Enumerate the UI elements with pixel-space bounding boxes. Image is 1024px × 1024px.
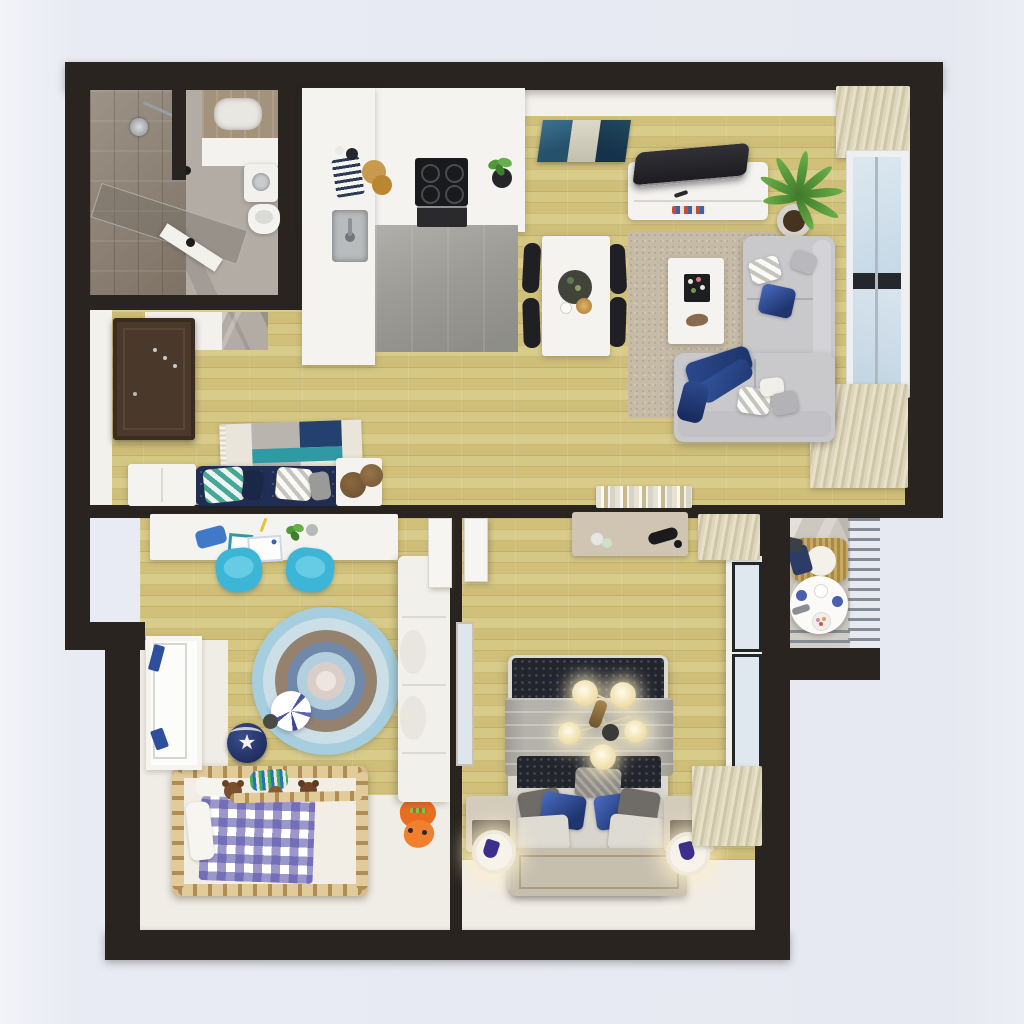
floorplan-render [0,0,1024,1024]
leaning-frame [456,622,474,766]
bathroom-inner-wall [172,90,186,180]
kitchen-plant [488,160,516,188]
balcony-table [790,576,848,634]
wall-left-lower [105,640,140,960]
orange-toy [396,796,440,850]
dining-chair [608,297,627,348]
desk-plant [284,524,306,546]
bed-foot-mat [511,848,687,896]
kitchen-sink [332,210,368,262]
blue-saucer-2 [832,596,843,607]
desk-gray-dot [306,524,318,536]
kitchen-concrete-floor [375,225,518,352]
sweets-plate [812,612,831,631]
kids-door-leaf [428,518,452,588]
wall-right-upper [905,62,943,518]
bedroom-desk [572,512,688,556]
gingham-blanket [199,796,316,884]
chandelier-hub [602,724,619,741]
bedroom-window-frame [726,556,762,774]
white-bowl [335,146,344,155]
bench-pillow-white [275,466,314,501]
bedroom-door-leaf [464,518,488,582]
balcony [788,518,880,650]
teacup [814,584,828,598]
crib [172,766,368,896]
wall-top [65,62,943,90]
bedroom-curtain-bottom [692,766,762,846]
star-ball [227,723,267,763]
kids-window [146,636,202,770]
living-window [846,150,910,398]
bathroom [90,90,278,295]
wall-bathroom-bottom [65,295,302,310]
entry-marble-mat [222,312,268,350]
kids-wardrobe [398,556,450,802]
gray-napkin [791,603,810,615]
gold-bowl [576,298,592,314]
hall-left-wall-face [90,310,112,506]
coffee-table [668,258,724,344]
blue-saucer [796,590,807,601]
dark-bowl [346,148,358,160]
flower-tray [684,274,710,302]
small-cup [560,302,572,314]
bedroom-curtain-top [698,514,760,560]
bedside-lamp-left [472,830,516,874]
chandelier [552,676,648,768]
crib-white-pillow-top [195,776,225,798]
living-plant [755,132,839,244]
dining-chair [608,244,628,295]
vanity-basin [214,98,262,130]
wall-bottom [105,930,790,960]
entry-door [113,318,195,440]
bench-pillow-teal [202,466,245,504]
dark-pebble [263,714,278,729]
balcony-railing-right [848,518,880,650]
hall-cabinet-left [128,464,196,506]
cutting-board-2 [372,175,392,195]
shower-head-icon [130,118,148,136]
drain-dot-2 [186,238,195,247]
toilet [248,204,280,234]
wall-left-upper [65,62,90,647]
bench-pillow-navy [241,469,265,501]
oven [417,206,467,227]
curtain-top-right [836,86,910,158]
book-row [596,486,692,508]
kids-round-rug [252,607,400,755]
decor-bird [685,313,708,328]
dining-table [542,236,610,356]
wall-balcony-bottom [785,648,880,680]
wall-bathroom-right [278,62,302,310]
dining-chair [522,243,542,294]
striped-towel [331,156,365,198]
bench-pillow-gray [308,471,332,502]
washing-machine [244,164,278,202]
pouf [360,464,383,487]
vanity-front [202,138,278,166]
wall-art [537,120,631,162]
cooktop [415,158,468,206]
dining-chair [522,298,541,349]
